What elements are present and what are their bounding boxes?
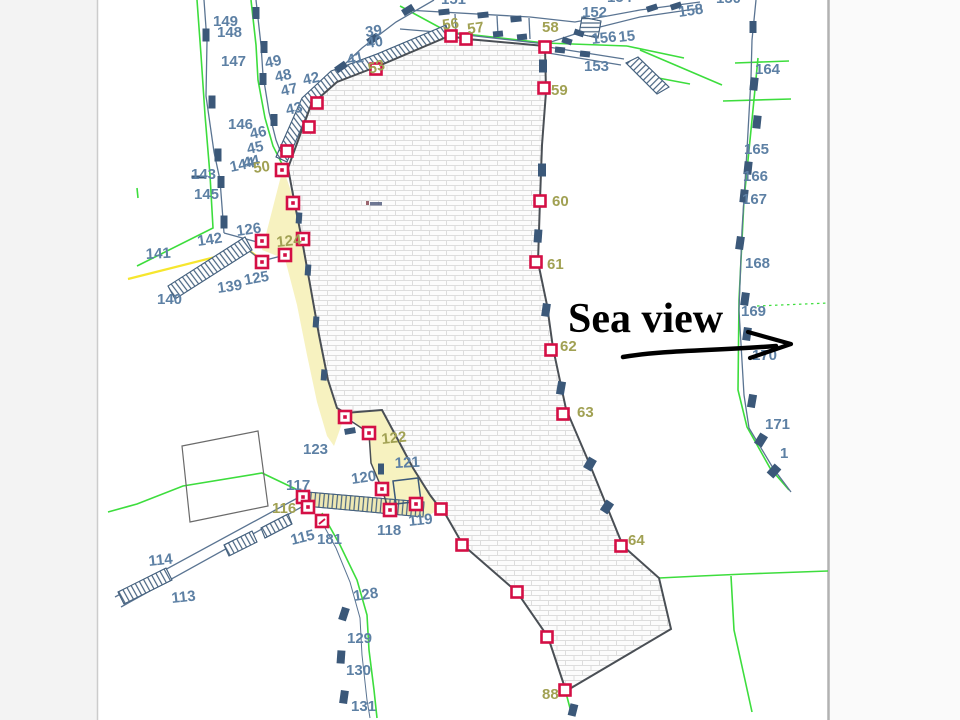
survey-mark	[321, 369, 328, 380]
point-number-label: 126	[235, 220, 262, 240]
boundary-point-marker	[282, 146, 293, 157]
point-number-label: 169	[741, 303, 766, 320]
sea-view-label: Sea view	[568, 296, 724, 342]
point-number-label: 130	[346, 662, 371, 679]
point-number-label: 166	[743, 168, 768, 185]
point-number-label: 58	[542, 19, 559, 36]
point-number-label: 167	[742, 191, 767, 208]
survey-mark	[555, 46, 566, 53]
boundary-point-dot	[260, 260, 264, 264]
survey-mark	[493, 30, 504, 37]
point-number-label: 131	[351, 698, 376, 715]
boundary-point-dot	[306, 505, 310, 509]
point-number-label: 141	[145, 245, 171, 263]
point-number-label: 124	[276, 231, 303, 251]
survey-mark	[313, 316, 320, 327]
survey-mark	[305, 264, 312, 275]
boundary-point-dot	[291, 201, 295, 205]
survey-mark	[534, 229, 543, 243]
point-number-label: 118	[377, 522, 401, 539]
boundary-point-marker	[304, 122, 315, 133]
boundary-point-dot	[414, 502, 418, 506]
survey-mark	[271, 114, 278, 126]
boundary-point-marker	[539, 83, 550, 94]
point-number-label: 168	[745, 255, 770, 272]
survey-mark	[296, 212, 303, 223]
point-number-label: 64	[628, 532, 645, 549]
boundary-point-dot	[283, 253, 287, 257]
point-number-label: 154	[607, 0, 633, 6]
point-number-label: 164	[755, 61, 781, 78]
survey-mark	[203, 29, 210, 42]
point-number-label: 63	[577, 404, 594, 421]
survey-mark	[539, 60, 547, 73]
point-number-label: 156	[591, 28, 618, 48]
survey-mark	[253, 7, 260, 19]
point-number-label: 128	[352, 585, 379, 605]
point-number-label: 123	[303, 441, 328, 458]
point-number-label: 142	[196, 230, 223, 250]
point-number-label: 140	[157, 291, 182, 308]
point-number-label: 41	[345, 49, 365, 69]
survey-mark	[510, 15, 522, 22]
point-number-label: 61	[547, 256, 564, 273]
point-number-label: 120	[350, 468, 377, 488]
boundary-point-marker	[616, 541, 627, 552]
point-number-label: 116	[272, 500, 296, 517]
survey-mark	[749, 77, 758, 91]
map-viewport: 1491481471461431451444445464948474342413…	[0, 0, 960, 720]
boundary-point-marker	[558, 409, 569, 420]
boundary-point-marker	[540, 42, 551, 53]
survey-mark	[438, 8, 450, 15]
point-number-label: 59	[551, 82, 568, 99]
boundary-point-dot	[301, 237, 305, 241]
point-number-label: 122	[381, 428, 408, 448]
boundary-point-marker	[457, 540, 468, 551]
survey-mark	[750, 21, 757, 33]
point-number-label: 42	[301, 69, 321, 89]
point-number-label: 50	[252, 158, 271, 177]
survey-mark	[209, 96, 216, 109]
point-number-label: 57	[466, 19, 485, 38]
point-number-label: 88	[542, 686, 559, 703]
point-number-label: 150	[716, 0, 741, 7]
boundary-point-marker	[512, 587, 523, 598]
boundary-point-dot	[343, 415, 347, 419]
boundary-point-marker	[531, 257, 542, 268]
point-number-label: 153	[584, 58, 609, 75]
point-number-label: 119	[408, 511, 434, 530]
point-number-label: 46	[248, 123, 268, 143]
point-number-label: 43	[284, 99, 304, 119]
survey-mark	[580, 50, 591, 57]
point-number-label: 60	[552, 193, 569, 210]
boundary-point-marker	[560, 685, 571, 696]
survey-mark	[752, 115, 761, 129]
point-number-label: 129	[347, 630, 372, 647]
point-number-label: 148	[217, 24, 242, 41]
right-gutter	[828, 0, 960, 720]
survey-mark	[261, 41, 268, 53]
survey-mark	[517, 33, 528, 40]
point-number-label: 121	[394, 454, 420, 472]
left-gutter	[0, 0, 98, 720]
point-number-label: 56	[441, 15, 460, 34]
point-number-label: 151	[441, 0, 466, 8]
survey-mark	[215, 149, 222, 162]
point-number-label: 114	[148, 550, 174, 570]
point-number-label: 1	[780, 445, 788, 462]
survey-mark	[337, 650, 346, 664]
point-number-label: 165	[744, 141, 769, 158]
boundary-point-marker	[436, 504, 447, 515]
boundary-point-marker	[546, 345, 557, 356]
cadastral-map: 1491481471461431451444445464948474342413…	[0, 0, 960, 720]
point-number-label: 117	[286, 477, 310, 494]
point-number-label: 147	[221, 53, 246, 70]
point-number-label: 143	[191, 166, 216, 183]
boundary-point-marker	[542, 632, 553, 643]
point-number-label: 15	[618, 27, 636, 46]
point-number-label: 47	[279, 80, 299, 100]
boundary-point-dot	[280, 168, 284, 172]
boundary-point-marker	[312, 98, 323, 109]
boundary-point-dot	[301, 495, 305, 499]
point-number-label: 158	[677, 1, 704, 21]
boundary-point-dot	[260, 239, 264, 243]
survey-mark	[538, 164, 546, 177]
point-number-label: 113	[171, 588, 197, 607]
point-number-label: 171	[765, 416, 790, 433]
point-number-label: 152	[582, 4, 607, 21]
survey-mark	[378, 464, 384, 475]
survey-mark	[260, 73, 267, 85]
point-number-label: 40	[365, 33, 384, 52]
boundary-point-dot	[367, 431, 371, 435]
green-tick	[137, 188, 138, 198]
point-number-label: 181	[317, 531, 342, 548]
boundary-point-dot	[380, 487, 384, 491]
survey-mark	[477, 11, 489, 18]
survey-mark	[221, 216, 228, 229]
point-number-label: 139	[216, 277, 243, 297]
boundary-point-dot	[388, 508, 392, 512]
point-number-label: 145	[194, 186, 219, 203]
boundary-point-marker	[535, 196, 546, 207]
